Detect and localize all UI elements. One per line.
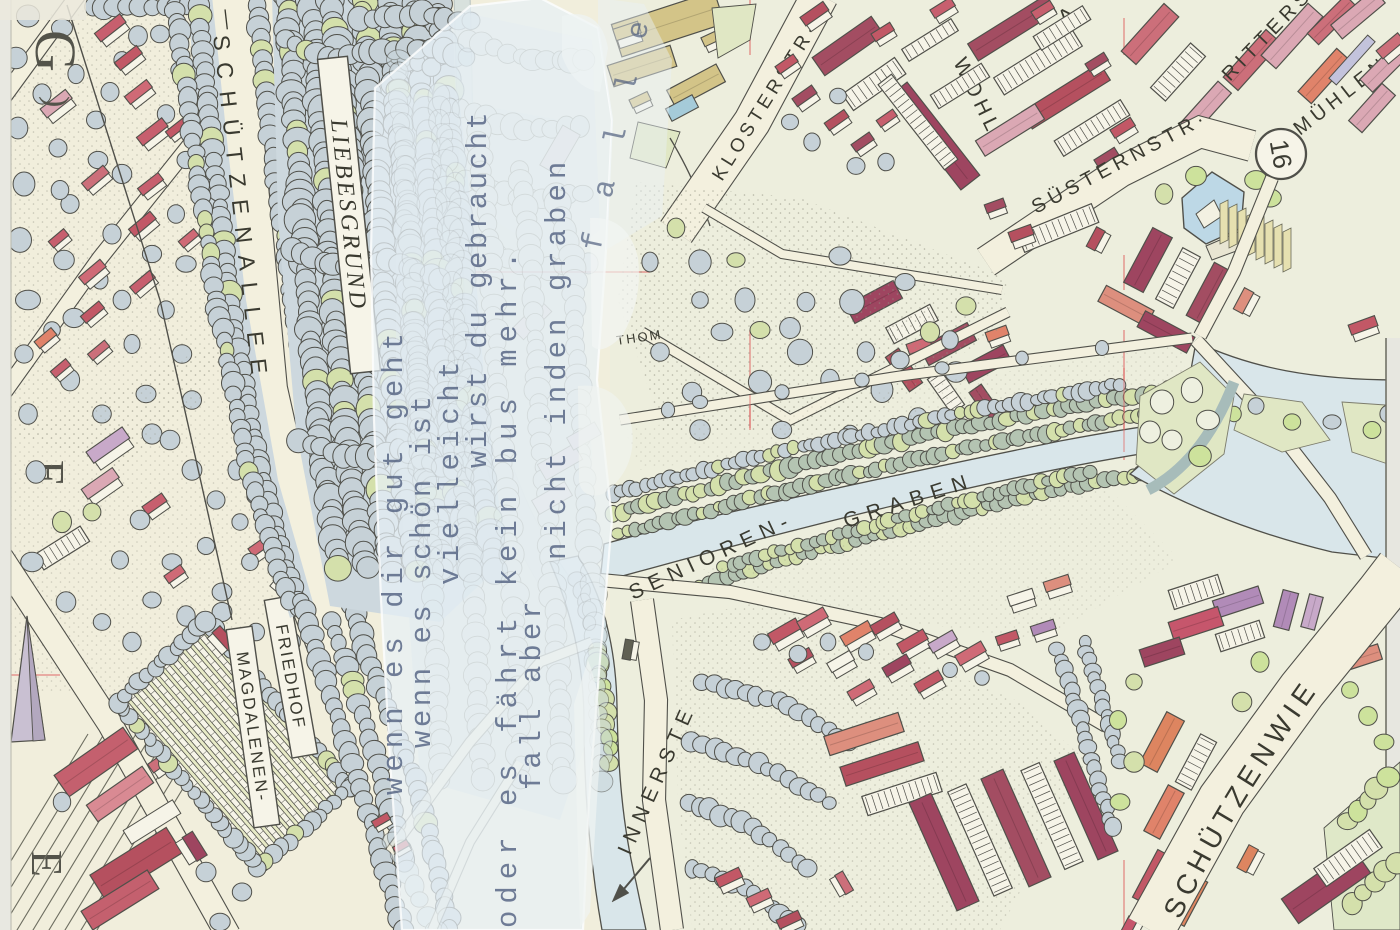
- svg-text:16: 16: [1264, 137, 1299, 171]
- svg-text:fall aber: fall aber: [516, 597, 549, 790]
- svg-text:G: G: [23, 30, 88, 72]
- svg-text:—: —: [215, 8, 239, 30]
- svg-text:): ): [38, 96, 75, 107]
- svg-text:oder es fährt kein bus mehr.: oder es fährt kein bus mehr.: [492, 245, 525, 928]
- svg-text:wirst du gebraucht: wirst du gebraucht: [462, 110, 495, 468]
- svg-text:nicht inden graben: nicht inden graben: [541, 157, 574, 560]
